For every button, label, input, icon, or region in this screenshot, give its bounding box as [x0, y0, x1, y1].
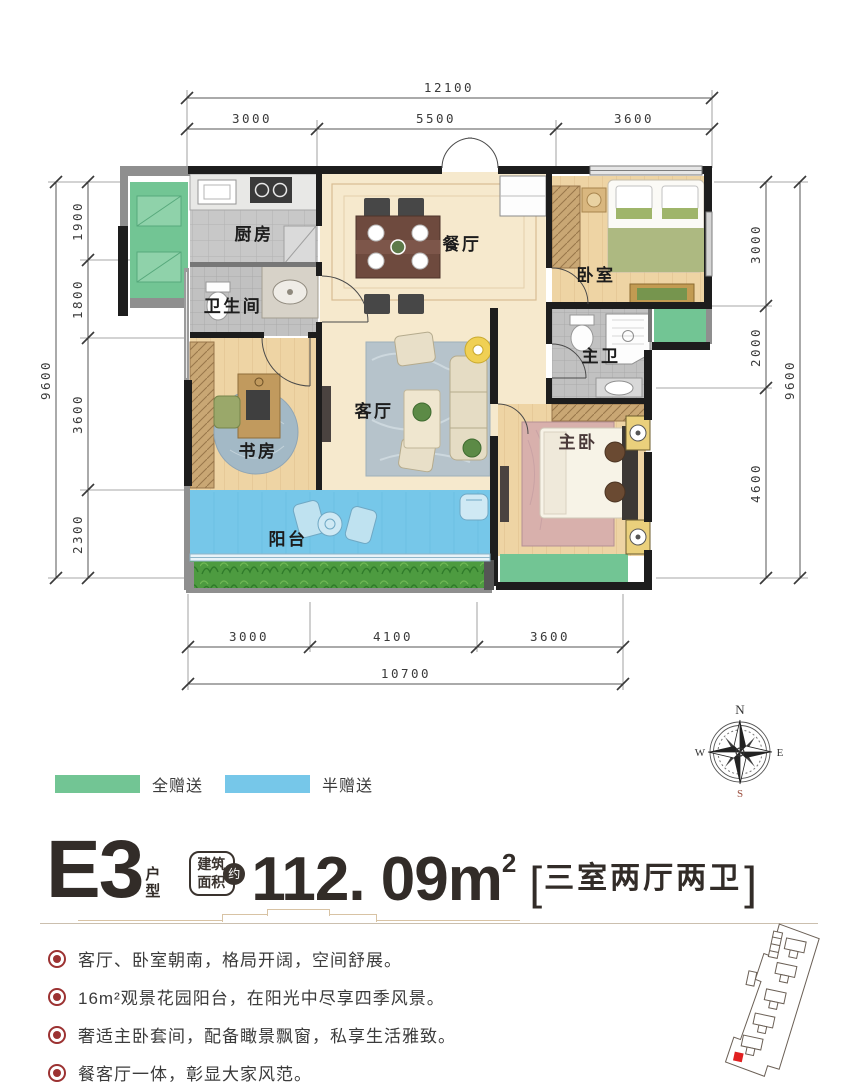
feature-item: 客厅、卧室朝南，格局开阔，空间舒展。 — [48, 946, 456, 971]
feature-item: 餐客厅一体，彰显大家风范。 — [48, 1060, 456, 1085]
study-chair — [214, 396, 240, 428]
master-bedroom-furniture — [500, 404, 650, 554]
svg-text:3000: 3000 — [748, 224, 763, 264]
room-label-bedroom: 卧室 — [577, 265, 616, 285]
room-label-balcony: 阳台 — [269, 529, 308, 549]
compass-rose: N E S W — [692, 702, 788, 802]
bullet-icon — [48, 988, 66, 1006]
dim-right-total: 9600 — [782, 360, 797, 400]
svg-text:5500: 5500 — [416, 111, 456, 126]
approx-badge: 约 — [223, 863, 245, 885]
key-plan-highlight-unit — [733, 1052, 744, 1063]
svg-text:3000: 3000 — [229, 629, 269, 644]
compass-s: S — [737, 788, 743, 800]
room-label-master-bedroom: 主卧 — [559, 432, 598, 452]
svg-text:1900: 1900 — [70, 201, 85, 241]
area-value: 112. 09m2 — [251, 853, 515, 906]
area-label-box: 建筑 面积 约 — [189, 851, 235, 896]
compass-n: N — [735, 702, 745, 717]
compass-w: W — [695, 747, 706, 759]
svg-text:3600: 3600 — [70, 394, 85, 434]
feature-item: 16m²观景花园阳台，在阳光中尽享四季风景。 — [48, 984, 456, 1009]
floorplan-page: 12100 3000 5500 3600 9600 1900 1800 3600… — [0, 0, 850, 1092]
svg-text:2300: 2300 — [70, 514, 85, 554]
armchair — [394, 332, 436, 367]
legend: 全赠送 半赠送 — [55, 772, 373, 796]
dim-left-total: 9600 — [38, 360, 53, 400]
compass-e: E — [777, 747, 784, 759]
balcony-table — [318, 512, 342, 536]
kitchen-stove — [250, 177, 292, 203]
dim-bottom-total: 10700 — [381, 666, 431, 681]
building-key-plan — [700, 917, 850, 1092]
wardrobe — [552, 186, 580, 268]
gift-area-right — [654, 308, 708, 342]
unit-title: E3 户型 建筑 面积 约 112. 09m2 [ 三室两厅两卫 ] — [46, 818, 757, 906]
layout-bracket-open: [ — [529, 865, 542, 902]
svg-text:3600: 3600 — [530, 629, 570, 644]
unit-code: E3 — [46, 834, 142, 906]
room-label-master-bath: 主卫 — [582, 346, 621, 366]
unit-code-suffix: 户型 — [145, 866, 163, 901]
feature-list: 客厅、卧室朝南，格局开阔，空间舒展。 16m²观景花园阳台，在阳光中尽享四季风景… — [48, 946, 456, 1092]
bullet-icon — [48, 950, 66, 968]
divider-step-inner — [267, 909, 330, 916]
area-superscript: 2 — [502, 848, 515, 878]
entry-door — [442, 138, 472, 168]
svg-text:3000: 3000 — [232, 111, 272, 126]
svg-text:1800: 1800 — [70, 279, 85, 319]
svg-text:2000: 2000 — [748, 327, 763, 367]
monitor — [246, 390, 270, 420]
room-label-dining: 餐厅 — [443, 234, 482, 254]
layout-text: 三室两厅两卫 — [544, 853, 742, 897]
planter — [460, 494, 488, 520]
room-label-living: 客厅 — [354, 401, 394, 421]
gift-area-bottom — [500, 554, 628, 584]
bullet-icon — [48, 1026, 66, 1044]
bullet-icon — [48, 1064, 66, 1082]
room-label-kitchen: 厨房 — [235, 224, 274, 244]
svg-text:4600: 4600 — [748, 463, 763, 503]
plant — [413, 403, 431, 421]
room-label-study: 书房 — [239, 441, 278, 461]
room-label-bath: 卫生间 — [204, 296, 263, 316]
tv-cabinet-master — [500, 466, 509, 522]
svg-text:3600: 3600 — [614, 111, 654, 126]
layout-bracket-close: ] — [744, 865, 757, 902]
legend-swatch-full-gift — [55, 775, 140, 793]
floor-plan: 12100 3000 5500 3600 9600 1900 1800 3600… — [0, 0, 850, 705]
legend-label-full-gift: 全赠送 — [152, 772, 203, 796]
dim-top-total: 12100 — [424, 80, 474, 95]
svg-text:4100: 4100 — [373, 629, 413, 644]
plant — [463, 439, 481, 457]
legend-swatch-half-gift — [225, 775, 310, 793]
feature-item: 奢适主卧套间，配备瞰景飘窗，私享生活雅致。 — [48, 1022, 456, 1047]
study-wardrobe — [190, 342, 214, 488]
master-basin — [605, 381, 633, 395]
legend-label-half-gift: 半赠送 — [322, 772, 373, 796]
